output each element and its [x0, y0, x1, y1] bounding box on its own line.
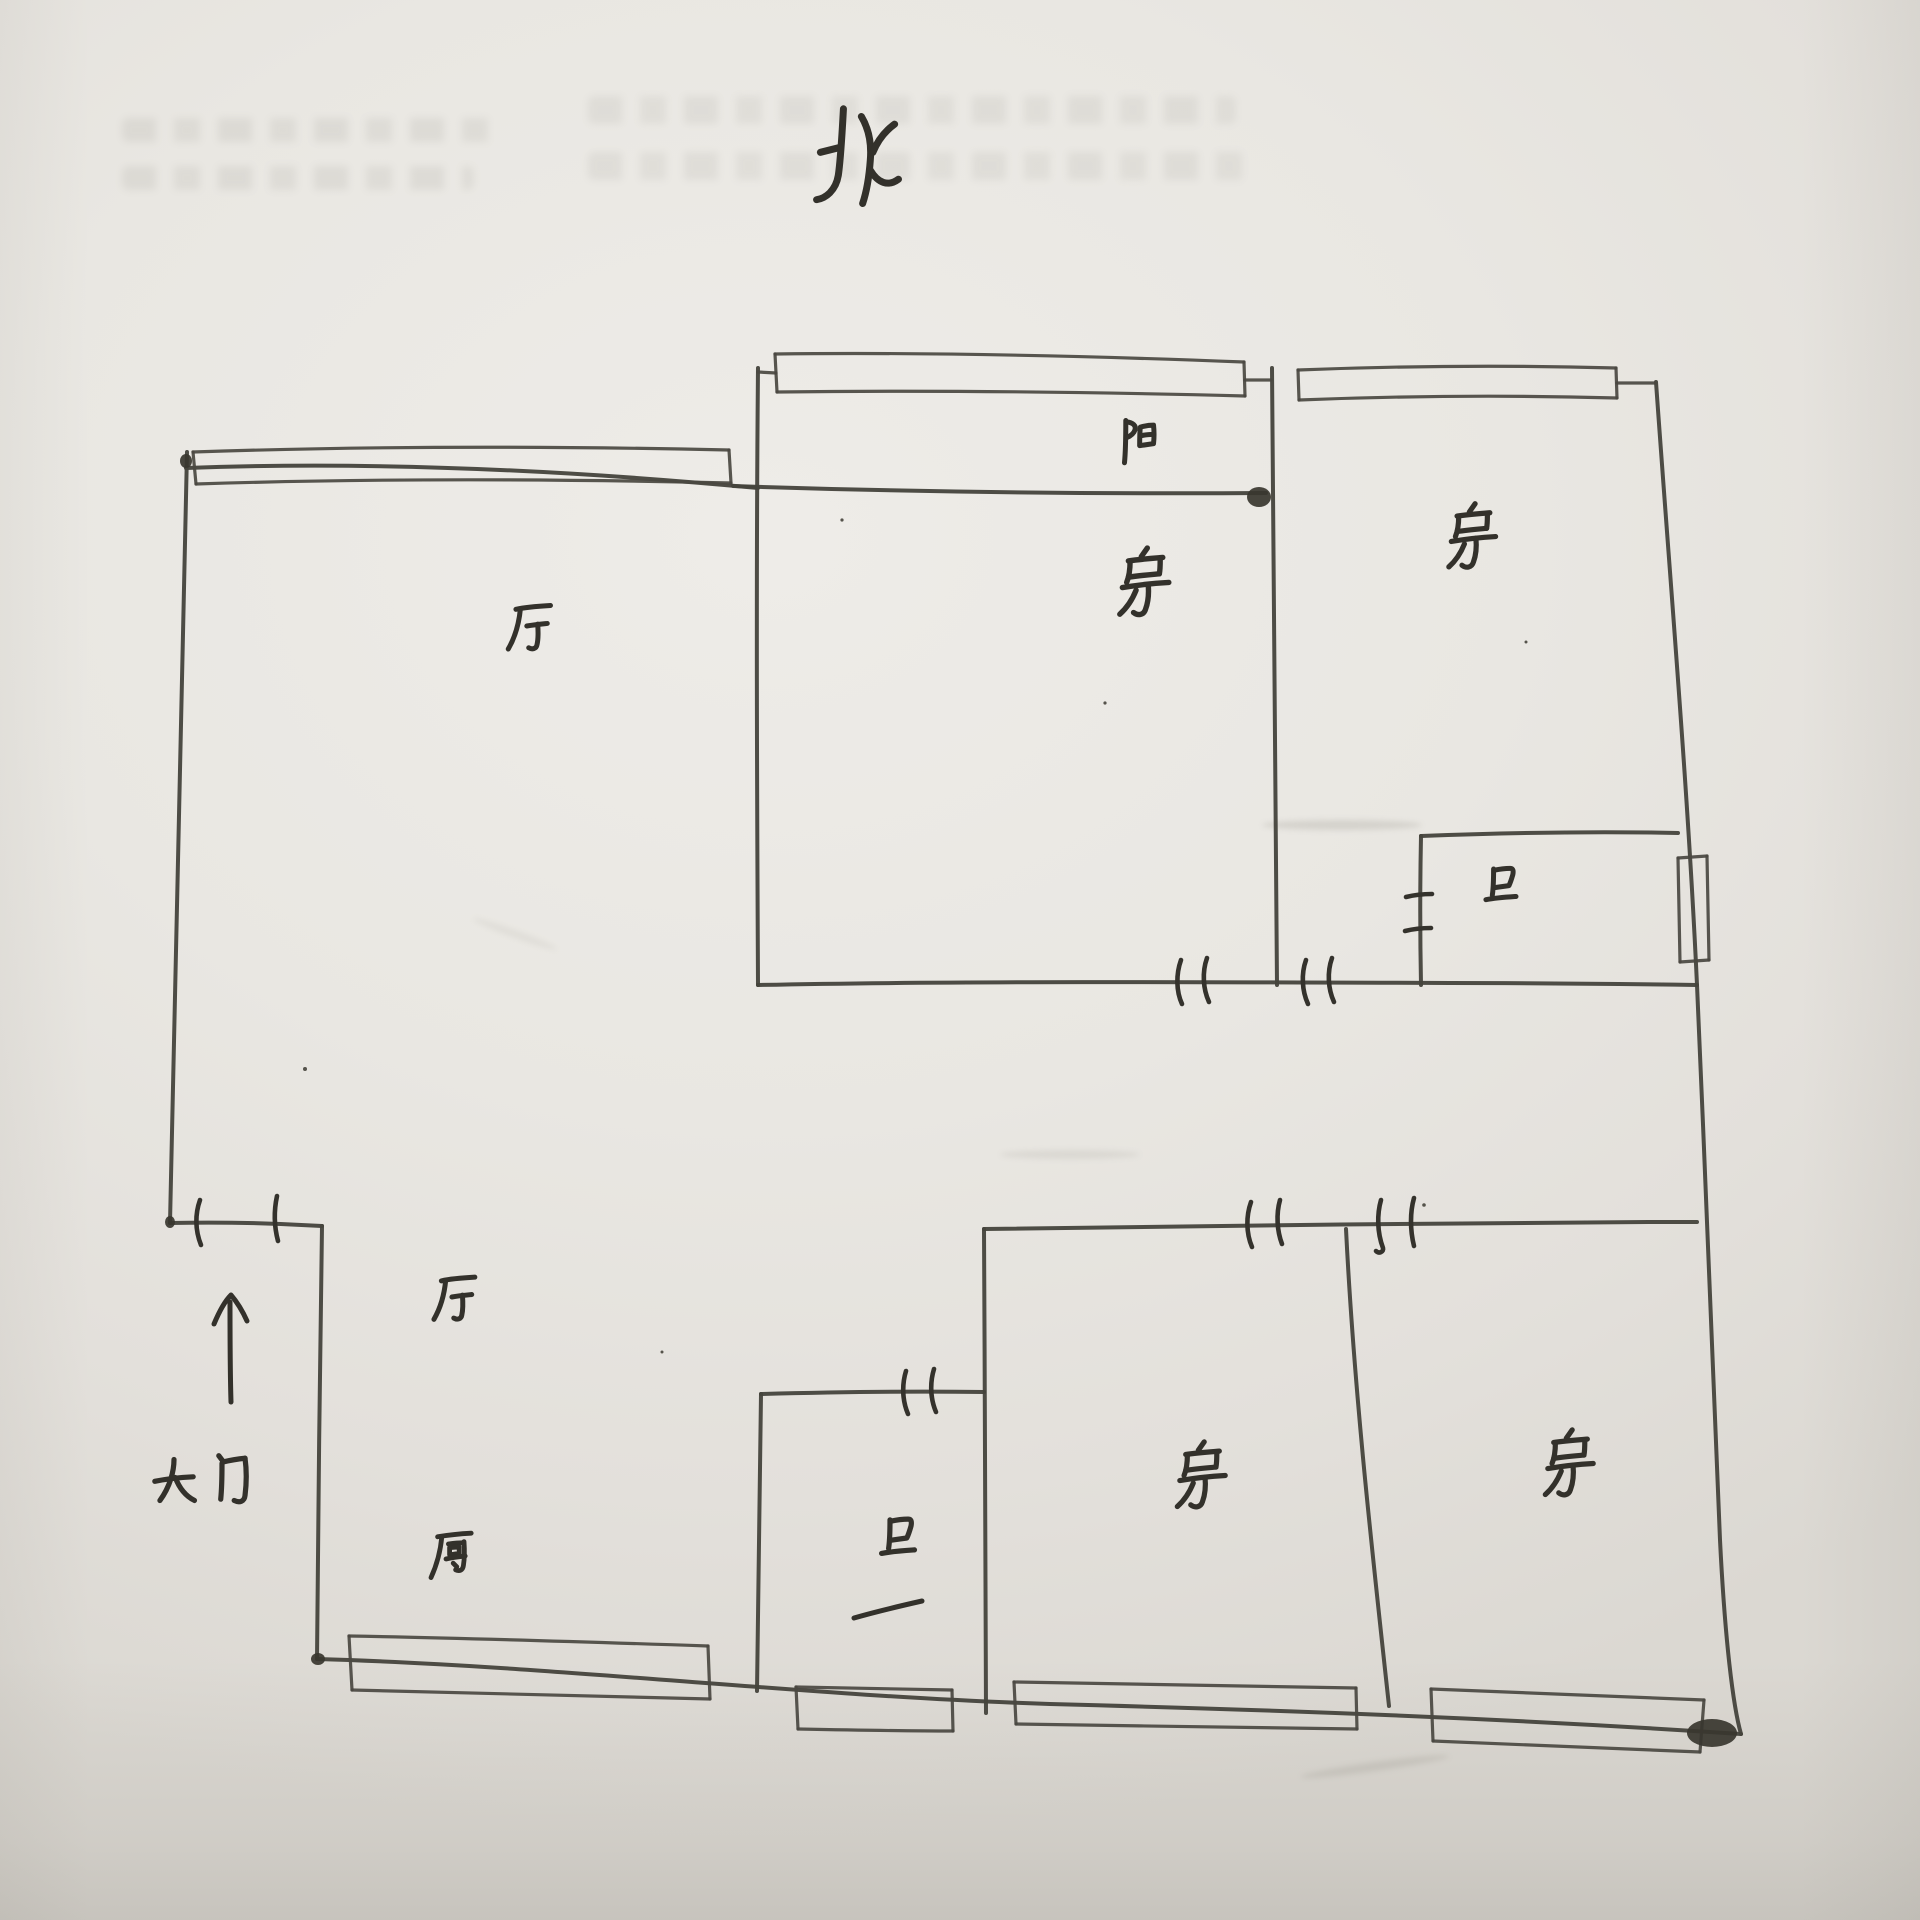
glyph-stroke: [1554, 1455, 1584, 1458]
room-label-hall-upper: [508, 606, 550, 650]
floor-plan-drawing: [0, 0, 1920, 1920]
wall-bath-upper-left: [1420, 836, 1421, 985]
window-line: [1707, 856, 1709, 960]
window-cap: [1431, 1689, 1433, 1741]
glyph-stroke: [1186, 1467, 1216, 1470]
room-label-kitchen: [431, 1533, 471, 1577]
tick-stroke: [1376, 1200, 1383, 1252]
room-label-balcony: [1124, 421, 1154, 463]
glyph-stroke: [434, 1280, 446, 1319]
corner-blob: [180, 454, 192, 468]
wall-midroom-left: [757, 368, 758, 985]
glyph-stroke: [448, 1543, 462, 1544]
window-kitchen-south: [349, 1636, 710, 1699]
paper-speck: [303, 1067, 307, 1071]
paper-speck: [1422, 1203, 1426, 1207]
window-line: [777, 391, 1245, 396]
wall-hall-top: [186, 466, 758, 488]
wall-bottom-rooms-divider: [1346, 1229, 1389, 1706]
glyph-stroke: [175, 1477, 194, 1500]
wall-bath-upper-top: [1421, 832, 1678, 836]
wall-bath-lower-left: [757, 1394, 761, 1691]
glyph-stroke: [891, 1519, 912, 1540]
arrow-shaft: [230, 1302, 231, 1402]
glyph-stroke: [1140, 434, 1153, 435]
window-line: [1431, 1689, 1704, 1700]
glyph-stroke: [431, 1537, 442, 1578]
wall-outer-right: [1656, 382, 1741, 1734]
window-line: [798, 1729, 953, 1731]
glyph-stroke: [1492, 869, 1493, 895]
room-label-bedroom-bottom-middle: [1177, 1442, 1225, 1507]
glyph-stroke: [450, 1547, 460, 1555]
window-cap: [952, 1690, 953, 1731]
room-label-bedroom-bottom-right: [1545, 1430, 1593, 1495]
wall-entrance-ledge: [170, 1223, 322, 1226]
glyph-stroke: [1457, 528, 1487, 531]
door-mark-entrance: [196, 1196, 278, 1245]
room-label-bath-lower: [882, 1519, 915, 1553]
window-cap: [796, 1687, 798, 1729]
windows: [193, 353, 1709, 1752]
window-line: [1298, 366, 1616, 370]
entry-arrow: [214, 1295, 247, 1402]
wall-lower-mid-left: [984, 1229, 986, 1713]
window-midroom-north: [758, 353, 1271, 396]
window-line: [349, 1636, 708, 1646]
wall-rooms-divider-top: [1272, 368, 1277, 985]
tick-stroke: [1406, 894, 1432, 897]
wall-balcony-bottom: [733, 486, 1266, 493]
window-line: [1016, 1724, 1357, 1729]
ink-blobs: [165, 454, 1737, 1747]
glyph-stroke: [1141, 548, 1147, 557]
glyph-stroke: [234, 1458, 246, 1501]
glyph-stroke: [1216, 1453, 1217, 1467]
window-cap: [1014, 1682, 1016, 1724]
glyph-stroke: [861, 116, 870, 203]
glyph-stroke: [221, 1463, 222, 1499]
corner-blob-bottom-right: [1687, 1719, 1737, 1747]
glyph-stroke: [1159, 559, 1160, 574]
room-label-bedroom-middle: [1120, 548, 1169, 615]
wall-bath-lower-top: [761, 1392, 984, 1394]
window-cap: [1678, 856, 1707, 858]
window-cap: [729, 450, 731, 483]
glyph-stroke: [882, 1550, 915, 1554]
paper-speck: [1103, 701, 1106, 704]
paper-speck: [661, 1351, 664, 1354]
tick-stroke: [1204, 958, 1209, 1002]
glyph-stroke: [1128, 574, 1159, 577]
wall-lower-section-top: [984, 1222, 1697, 1229]
glyph-stroke: [889, 1520, 890, 1549]
glyph-stroke: [870, 170, 898, 183]
glyph-stroke: [223, 1458, 245, 1462]
wall-lower-left: [317, 1226, 322, 1659]
paper-speck: [1525, 641, 1528, 644]
walls: [170, 368, 1741, 1734]
glyph-stroke: [1494, 868, 1513, 887]
window-cap: [708, 1646, 710, 1699]
window-line: [1299, 396, 1617, 400]
window-line: [1678, 858, 1680, 962]
glyph-stroke: [1487, 514, 1488, 528]
glyph-stroke: [1584, 1441, 1585, 1455]
door-marks: [196, 894, 1432, 1414]
entrance-label: [155, 1456, 246, 1502]
room-label-bath-upper: [1486, 868, 1516, 899]
window-cap: [1680, 960, 1709, 962]
glyph-stroke: [508, 609, 520, 649]
glyph-stroke: [1198, 1442, 1204, 1450]
window-line: [1433, 1741, 1700, 1752]
wall-top-section-bottom: [758, 982, 1697, 985]
junction-drip: [1247, 508, 1257, 535]
window-cap: [1356, 1688, 1357, 1729]
glyph-stroke: [1124, 421, 1125, 463]
corner-blob: [165, 1216, 175, 1228]
glyph-stroke: [1469, 504, 1475, 512]
tick-stroke: [275, 1196, 278, 1241]
junction-blob: [1247, 487, 1271, 507]
glyph-stroke: [1566, 1430, 1572, 1438]
window-line: [775, 353, 1244, 362]
window-stub: [758, 372, 776, 373]
window-rightroom-north: [1298, 366, 1655, 400]
wall-hall-left: [170, 452, 187, 1223]
room-label-hall-lower: [434, 1277, 475, 1319]
compass-north-label: [817, 109, 899, 204]
corner-blob: [311, 1653, 325, 1665]
window-line: [352, 1690, 710, 1699]
room-label-bedroom-right: [1449, 504, 1496, 567]
bath-lower-underline: [854, 1601, 922, 1618]
window-line: [196, 480, 731, 484]
glyph-stroke: [1486, 896, 1516, 899]
glyph-stroke: [453, 1563, 457, 1567]
tick-stroke: [1329, 958, 1334, 1002]
tick-stroke: [1278, 1200, 1282, 1244]
paper-speck: [840, 518, 843, 521]
window-cap: [1298, 370, 1299, 400]
window-line: [1014, 1682, 1356, 1688]
paper-background: [0, 0, 1920, 1920]
window-cap: [349, 1636, 352, 1690]
tick-stroke: [1405, 928, 1431, 931]
glyph-stroke: [873, 124, 895, 152]
window-line: [193, 447, 729, 452]
window-cap: [193, 452, 196, 484]
